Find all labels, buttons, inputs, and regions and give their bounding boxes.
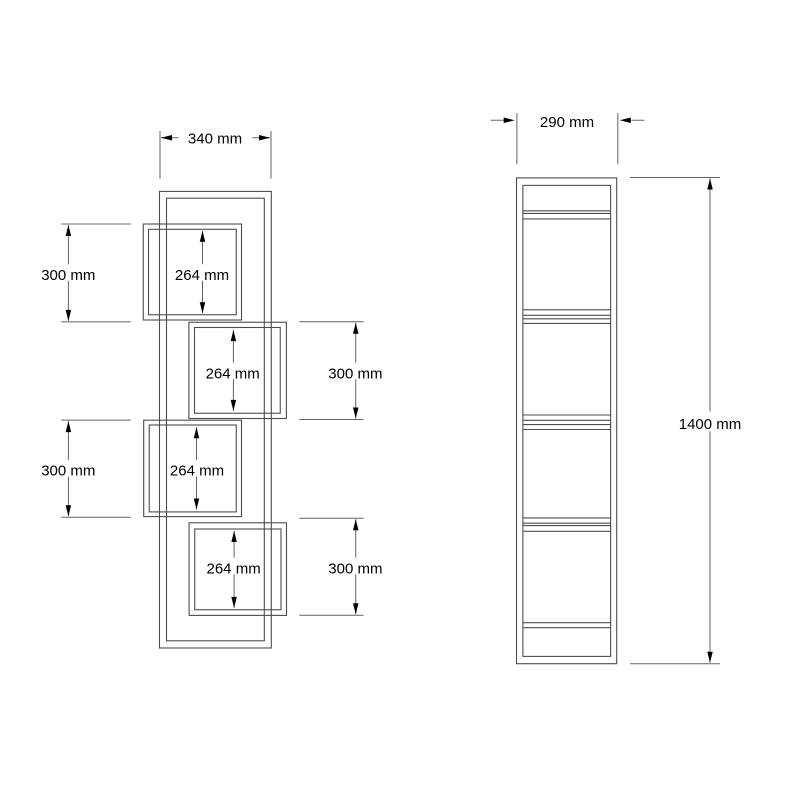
svg-text:300 mm: 300 mm: [41, 267, 95, 284]
svg-text:300 mm: 300 mm: [41, 463, 95, 480]
svg-text:264 mm: 264 mm: [206, 365, 260, 382]
svg-text:340 mm: 340 mm: [188, 130, 242, 147]
svg-text:300 mm: 300 mm: [328, 560, 382, 577]
svg-text:264 mm: 264 mm: [207, 560, 261, 577]
svg-text:264 mm: 264 mm: [175, 267, 229, 284]
svg-text:264 mm: 264 mm: [170, 463, 224, 480]
svg-text:1400 mm: 1400 mm: [679, 416, 742, 433]
svg-text:290 mm: 290 mm: [540, 114, 594, 131]
svg-text:300 mm: 300 mm: [328, 365, 382, 382]
